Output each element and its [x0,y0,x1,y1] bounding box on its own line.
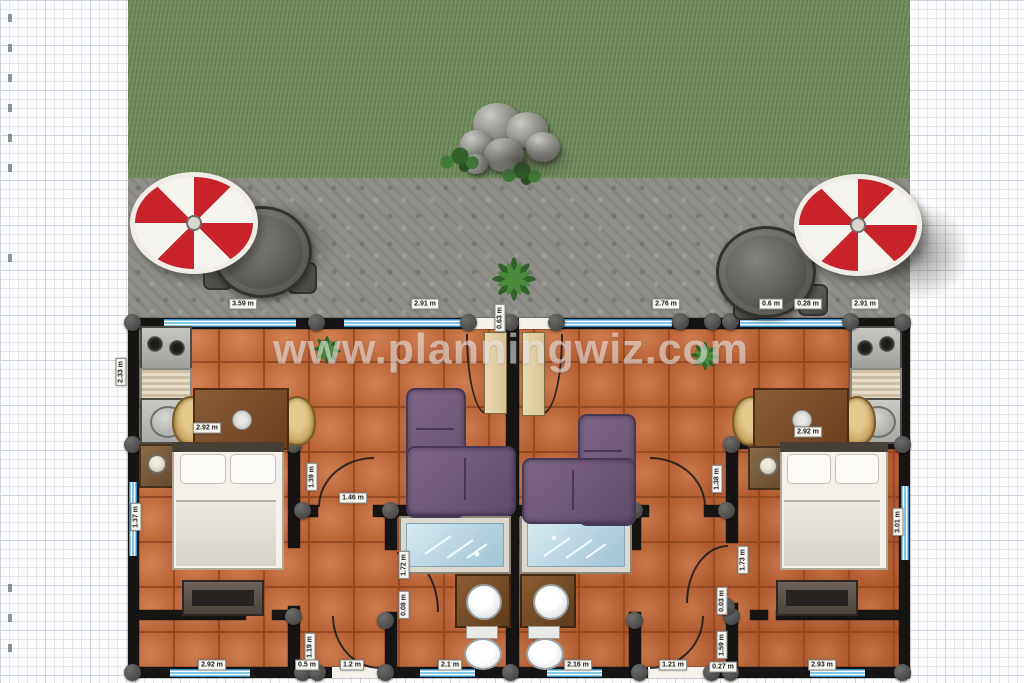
door-opening [648,667,706,678]
parasol-hub [850,217,866,233]
dimension-label: 2.33 m [116,358,127,386]
headboard [780,442,888,452]
wall-node [502,664,519,681]
pillow [835,454,879,484]
sofa-seam [416,428,454,430]
wall-node [382,502,399,519]
wall-bedroom-left-side [288,438,300,548]
wall-bedroom-right-side [726,438,738,543]
floor-plan-canvas: www.planningwiz.com 3.59 m2.91 m0.63 m2.… [0,0,1024,683]
stove-left [140,326,192,372]
toilet-bowl [526,638,564,670]
nightstand-right [748,446,784,490]
vanity-basin [466,584,502,620]
water-sparkle [407,524,503,566]
agave-plant [483,250,545,308]
burner [147,336,163,352]
wall-node [894,436,911,453]
plan-area: www.planningwiz.com [128,0,910,683]
ruler-tick [8,584,12,592]
lamp [758,456,778,476]
ruler-tick [8,104,12,112]
toilet-bowl [464,638,502,670]
wall-node [842,313,859,330]
pillow [180,454,226,484]
door-opening [332,667,378,678]
bed-left [172,442,284,570]
window [547,669,602,677]
parasol-right [794,174,922,276]
plate [792,410,812,430]
dining-table-right [753,388,849,450]
bed-right [780,442,888,570]
ruler-tick [8,164,12,172]
pillow [230,454,276,484]
wall-node [718,598,735,615]
sofa-seam [464,458,466,500]
dresser-left [182,580,264,616]
ruler-tick [8,134,12,142]
ruler-tick [8,614,12,622]
wall-node [703,664,720,681]
ruler-tick [8,44,12,52]
wall-node [285,608,302,625]
burner [857,340,873,356]
sofa-right [522,414,632,522]
wall-node [294,502,311,519]
bathtub-left [399,516,511,574]
wall-node [309,664,326,681]
headboard [172,442,284,452]
dining-table-left [193,388,289,450]
window [810,669,865,677]
ruler-tick [8,644,12,652]
window [129,482,137,556]
parasol-hub [186,215,202,231]
wall-node [124,664,141,681]
ruler-tick [8,14,12,22]
lamp [147,454,167,474]
window [901,486,909,560]
dresser-right [776,580,858,616]
wall-node [894,664,911,681]
wall-divider-right [750,610,768,620]
pillow [787,454,831,484]
wall-node [718,502,735,519]
toilet-right [524,626,562,668]
sofa-seam [584,450,622,452]
sofa-section [522,458,636,524]
ruler-tick [8,254,12,262]
wall-node [626,612,643,629]
burner [169,340,185,356]
wall-node [377,612,394,629]
blanket [784,500,880,566]
window [740,319,848,327]
window [420,669,475,677]
vanity-right [520,574,576,628]
sofa-section [406,446,516,516]
wall-node [377,664,394,681]
water-sparkle [528,524,624,566]
sofa-seam [572,470,574,510]
nightstand-left [139,444,175,488]
blanket [176,500,276,566]
wall-node [722,664,739,681]
vanity-basin [533,584,569,620]
plate [232,410,252,430]
sofa-left [406,388,512,514]
vanity-left [455,574,511,628]
window [170,669,250,677]
burner [879,336,895,352]
wall-node [894,314,911,331]
toilet-left [462,626,500,668]
parasol-left [130,172,258,274]
wall-node [631,664,648,681]
ruler-tick [8,74,12,82]
stove-right [850,326,902,372]
wall-node [124,314,141,331]
rock-shadow [458,138,578,182]
watermark-text: www.planningwiz.com [273,326,749,375]
